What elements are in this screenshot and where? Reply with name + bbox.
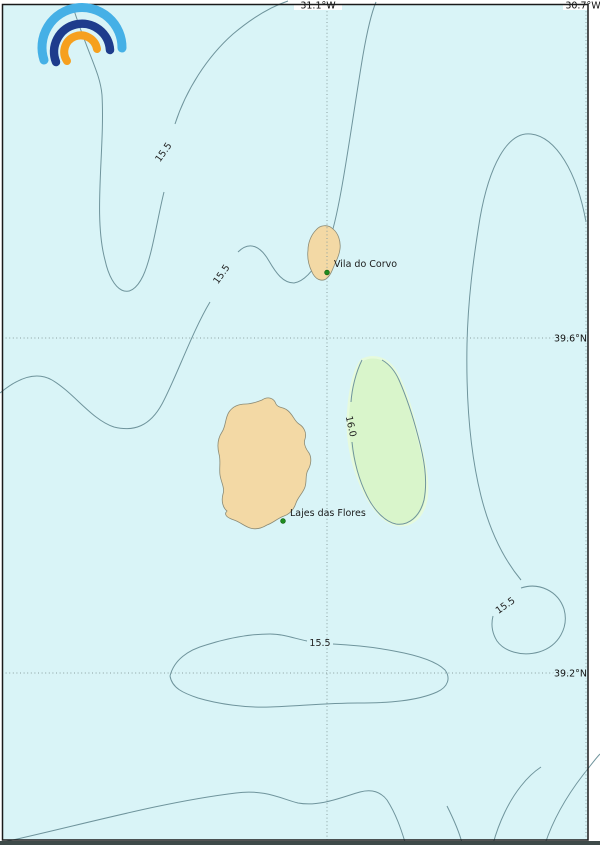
map-canvas: 31.1°W 30.7°W 39.6°N 39.2°N Vila do Corv… xyxy=(0,0,600,845)
place-label-lajes-das-flores: Lajes das Flores xyxy=(290,508,366,519)
vila-do-corvo-marker xyxy=(325,270,330,275)
latitude-label-39-6n: 39.6°N xyxy=(554,334,587,345)
contour-label-15-5: 15.5 xyxy=(309,638,330,649)
place-label-vila-do-corvo: Vila do Corvo xyxy=(334,259,397,270)
latitude-label-39-2n: 39.2°N xyxy=(554,669,587,680)
lajes-das-flores-marker xyxy=(281,519,286,524)
longitude-label-31-1w: 31.1°W xyxy=(300,1,336,12)
bottom-bar xyxy=(0,841,600,845)
longitude-label-30-7w: 30.7°W xyxy=(565,1,600,12)
map-figure: 31.1°W 30.7°W 39.6°N 39.2°N Vila do Corv… xyxy=(0,0,600,845)
